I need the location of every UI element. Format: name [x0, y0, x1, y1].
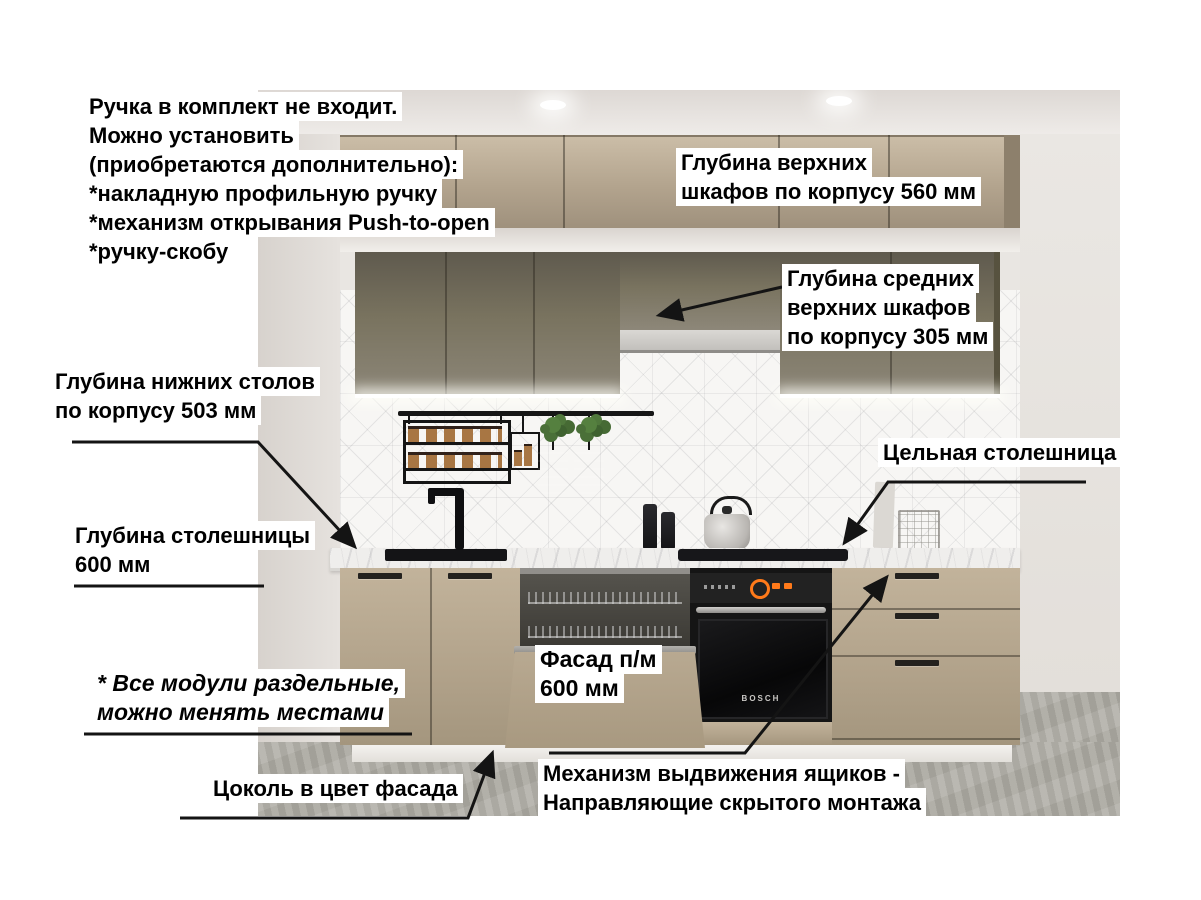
herb-plant: [540, 424, 550, 434]
drawer-seam: [832, 655, 1020, 657]
hanging-plant-pot: [574, 448, 604, 494]
note-line: по корпусу 503 мм: [50, 396, 261, 425]
note-line: * Все модули раздельные,: [92, 669, 405, 698]
middle-cabinet-left: [355, 252, 620, 398]
note-line: *накладную профильную ручку: [84, 179, 442, 208]
spice-grinder: [643, 504, 657, 550]
note-upper-depth: Глубина верхних шкафов по корпусу 560 мм: [676, 148, 981, 206]
door-handle: [358, 573, 402, 579]
dishwasher-rack: [528, 592, 682, 604]
kettle: [704, 514, 750, 550]
drawer-handle: [895, 660, 939, 666]
note-line: по корпусу 305 мм: [782, 322, 993, 351]
range-hood: [620, 330, 780, 353]
middle-cabinet-above-hood: [620, 252, 780, 330]
under-cabinet-light: [780, 394, 1000, 398]
drawer-handle: [895, 573, 939, 579]
door-handle: [448, 573, 492, 579]
note-line: (приобретаются дополнительно):: [84, 150, 463, 179]
note-line: Глубина средних: [782, 264, 979, 293]
jar: [514, 450, 522, 466]
under-cabinet-light: [355, 394, 620, 398]
note-line: Глубина верхних: [676, 148, 872, 177]
note-drawer-mechanism: Механизм выдвижения ящиков - Направляющи…: [538, 759, 926, 817]
wire-basket: [898, 510, 940, 552]
cabinet-door-seam: [563, 135, 565, 228]
drawer-handle: [895, 613, 939, 619]
note-line: Механизм выдвижения ящиков -: [538, 759, 905, 788]
oven-display-dial: [750, 579, 770, 599]
note-handle: Ручка в комплект не входит. Можно устано…: [84, 92, 495, 266]
oven-display-digit: [772, 583, 780, 589]
note-line: можно менять местами: [92, 698, 389, 727]
ceiling-spotlight: [826, 96, 852, 106]
note-line: *ручку-скобу: [84, 237, 233, 266]
spice-grinder: [661, 512, 675, 550]
kettle-lid: [722, 506, 732, 514]
rail-hook: [552, 416, 554, 450]
middle-cabinet-side-panel: [994, 252, 1000, 398]
note-line: шкафов по корпусу 560 мм: [676, 177, 981, 206]
note-line: *механизм открывания Push-to-open: [84, 208, 495, 237]
note-line: Глубина нижних столов: [50, 367, 320, 396]
note-line: 600 мм: [535, 674, 624, 703]
cabinet-door-seam: [430, 568, 432, 745]
wall-rail: [398, 411, 654, 416]
note-modules: * Все модули раздельные, можно менять ме…: [92, 669, 405, 727]
oven-door-glass: [698, 619, 828, 719]
note-plinth: Цоколь в цвет фасада: [208, 774, 463, 803]
upper-cabinet-side-panel: [1004, 135, 1020, 228]
note-line: Направляющие скрытого монтажа: [538, 788, 926, 817]
note-line: Фасад п/м: [535, 645, 662, 674]
note-line: Цельная столешница: [878, 438, 1121, 467]
annotated-kitchen-image: BOSCH Ручка в комплект не входит. Можно …: [0, 0, 1201, 900]
note-dishwasher-facade: Фасад п/м 600 мм: [535, 645, 662, 703]
note-line: Ручка в комплект не входит.: [84, 92, 402, 121]
note-countertop-depth: Глубина столешницы 600 мм: [70, 521, 315, 579]
note-base-depth: Глубина нижних столов по корпусу 503 мм: [50, 367, 320, 425]
jar: [524, 444, 532, 466]
hanging-plant-pot: [538, 448, 568, 494]
cabinet-door-seam: [533, 252, 535, 398]
drawer-seam: [832, 738, 1020, 740]
oven-lower-drawer: [690, 722, 832, 745]
note-line: 600 мм: [70, 550, 155, 579]
cutting-board: [873, 482, 895, 549]
right-wall: [1020, 134, 1120, 694]
spice-shelf-bar: [403, 468, 511, 471]
faucet-spout-tip: [428, 488, 435, 504]
oven-brand-logo: BOSCH: [690, 694, 832, 703]
ceiling-spotlight: [540, 100, 566, 110]
cabinet-door-seam: [445, 252, 447, 398]
oven-handle: [696, 607, 826, 613]
note-line: Цоколь в цвет фасада: [208, 774, 463, 803]
oven-display-digit: [784, 583, 792, 589]
note-middle-upper-depth: Глубина средних верхних шкафов по корпус…: [782, 264, 993, 351]
note-line: Можно установить: [84, 121, 299, 150]
note-line: Глубина столешницы: [70, 521, 315, 550]
faucet-body: [455, 488, 464, 550]
dishwasher-frame: [520, 568, 690, 574]
herb-plant: [576, 424, 586, 434]
cooktop: [678, 549, 848, 561]
drawer-seam: [832, 608, 1020, 610]
note-line: верхних шкафов: [782, 293, 976, 322]
rail-hook: [588, 416, 590, 450]
sink: [385, 549, 507, 561]
spice-shelf-bar: [403, 442, 511, 445]
oven-display-icons: [704, 585, 738, 589]
dishwasher-rack: [528, 626, 682, 638]
note-solid-countertop: Цельная столешница: [878, 438, 1121, 467]
